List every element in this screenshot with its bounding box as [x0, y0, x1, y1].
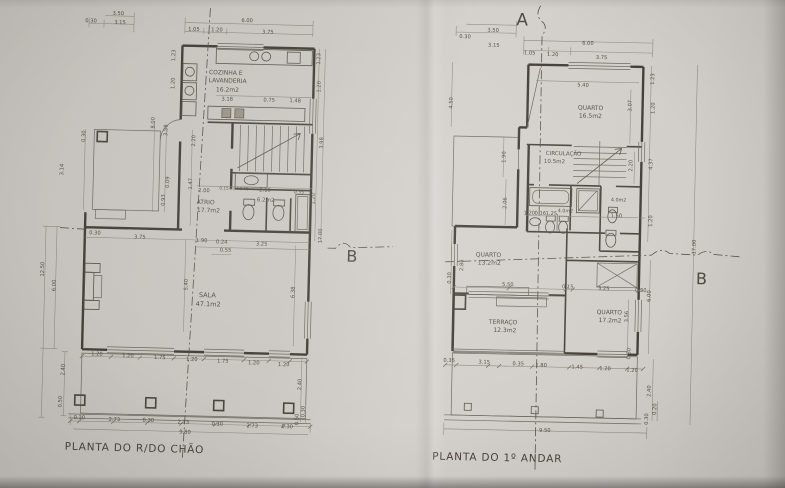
dimension-label: 1.20	[311, 193, 317, 205]
ground-floor-title: PLANTA DO R/DO CHÃO	[65, 440, 205, 456]
counter-hob	[235, 109, 244, 118]
dimension-label: 2.20	[628, 160, 634, 172]
dimension-label: 0.30	[85, 18, 97, 24]
room-area: 16.2m2	[216, 86, 239, 94]
dimension-label: 0.50	[58, 396, 64, 408]
dimension-label: 2.06	[502, 197, 508, 209]
dimension-label: 2.40	[647, 385, 653, 397]
left-floor-plan: B 3.500.303.156.001.051.203.75COZINHA EL…	[35, 4, 398, 462]
dimension-label: 1.20	[547, 52, 559, 58]
wardrobe	[597, 263, 637, 288]
photographed-blueprint: B 3.500.303.156.001.051.203.75COZINHA EL…	[0, 0, 785, 488]
toilet	[273, 205, 284, 220]
fireplace	[84, 263, 102, 309]
roof-hatch	[452, 136, 519, 227]
dimension-label: 3.15	[114, 20, 126, 26]
porch-tiles	[92, 129, 160, 220]
room-area: 17.7m2	[197, 207, 220, 215]
room-area: 4.0m2	[558, 208, 573, 214]
dimension-label: 1.05	[188, 27, 200, 33]
room-area: 12.3m2	[493, 327, 516, 334]
dimension-label: 1.80	[535, 363, 547, 369]
room-area: 10.5m2	[544, 159, 565, 165]
dimension-label: 1.20	[626, 368, 638, 374]
dimension-label: 1.90	[196, 238, 208, 244]
dimension-label: 3.15	[488, 43, 500, 49]
column	[214, 400, 224, 410]
dimension-label: 1.20	[648, 215, 654, 227]
dimension-label: 1.20	[248, 360, 260, 366]
room-label: QUARTO	[476, 251, 502, 259]
stove	[287, 52, 300, 63]
dimension-label: 0.15	[562, 284, 574, 290]
dimension-label: 0.93	[161, 194, 167, 206]
column	[146, 398, 156, 408]
dimension-label: 0.84	[229, 186, 239, 191]
appliance	[183, 64, 197, 81]
column	[453, 295, 465, 309]
dimension-label: 3.56	[624, 311, 630, 323]
staircase	[573, 140, 627, 186]
dimension-label: 0.30	[635, 288, 647, 294]
column	[284, 403, 294, 413]
dimension-label: 0.30	[74, 415, 86, 421]
room-area: 6.2m2	[257, 197, 275, 203]
dimension-label: 2.73	[177, 420, 189, 426]
dimension-label: 2.20	[191, 135, 197, 147]
dimension-label: 1.20	[316, 81, 322, 93]
right-floor-plan: A B 3.500.303.156.001.051.203.755.40QUAR…	[432, 4, 747, 474]
dimension-label: 4.37	[648, 158, 654, 170]
section-marker-b: B	[346, 247, 357, 266]
room-label: ATRIO	[197, 199, 215, 206]
dimension-label: 0.30	[626, 348, 632, 360]
first-floor-title: PLANTA DO 1º ANDAR	[432, 451, 562, 466]
dimension-label: 0.09	[165, 176, 171, 188]
dimension-label: 2.40	[297, 379, 303, 391]
dimension-label: 1.05	[524, 50, 536, 56]
dimension-label: 0.20	[652, 403, 658, 415]
room-label: COZINHA E	[209, 69, 243, 77]
bathroom-fixtures	[529, 188, 618, 248]
kitchen-fixtures	[182, 48, 313, 122]
dimension-label: 1.20	[186, 357, 198, 363]
post-base	[596, 410, 603, 417]
dimension-label: 9.50	[539, 428, 551, 434]
staircase	[237, 125, 304, 173]
dimension-label: 0.30	[281, 424, 293, 430]
dimension-label: 1.20	[599, 366, 611, 372]
section-marker-b: B	[696, 269, 707, 288]
dimension-label: 2.40	[60, 364, 66, 376]
dimension-label: 3.07	[628, 100, 634, 112]
dimension-label: 2.16	[259, 187, 271, 193]
counter-hob	[222, 109, 231, 118]
dimension-label: 0.35	[294, 189, 304, 195]
dimension-label: 1.25	[545, 211, 557, 217]
dimension-label: 3.14	[59, 163, 65, 175]
dimension-label: 2.73	[108, 417, 120, 423]
dimension-label: 1.20	[122, 353, 134, 359]
dimension-label: 1.75	[154, 355, 166, 361]
dimension-label: 0.35	[512, 361, 524, 367]
dimension-label: 17.00	[692, 240, 698, 255]
dimension-label: 5.50	[502, 282, 514, 288]
dimension-label: 0.35	[443, 358, 455, 364]
dimension-label: 0.55	[220, 247, 232, 253]
dimension-label: 8.00	[150, 117, 156, 129]
dimension-label: 1.47	[188, 178, 194, 190]
dimension-label: 6.38	[290, 286, 296, 298]
dimension-label: 1.20	[650, 102, 656, 114]
dimension-label: 3.75	[596, 55, 608, 61]
dimension-label: 0.30	[89, 230, 101, 236]
room-label: CIRCULAÇÃO	[546, 150, 582, 158]
dimension-label: 2.00	[198, 188, 210, 194]
dimension-label: 1.45	[571, 364, 583, 370]
dimension-label: 1.23	[316, 53, 322, 65]
dimension-label: 4.50	[449, 97, 455, 109]
dimension-label: 12.50	[40, 262, 46, 277]
dimension-label: 6.00	[241, 18, 253, 24]
dimension-label: 5.40	[184, 279, 190, 291]
dimension-label: 3.50	[487, 28, 499, 34]
dimension-label: 1.20	[278, 362, 290, 368]
column	[97, 131, 107, 141]
dimension-label: 0.16	[534, 211, 546, 217]
dimension-label: 2.88	[459, 259, 465, 271]
room-area: 16.5m2	[579, 113, 602, 120]
sink-bowl	[262, 52, 271, 61]
dimension-label: 3.75	[262, 29, 274, 35]
section-marker-a: A	[516, 10, 528, 30]
dimension-label: 9.80	[179, 430, 191, 436]
dimension-label: 0.30	[447, 272, 453, 284]
section-line-a: A	[507, 5, 546, 470]
post-base	[531, 407, 538, 414]
room-label: QUARTO	[597, 309, 623, 317]
terrace-tiles	[68, 353, 312, 424]
dimension-label: 0.30	[644, 413, 650, 425]
dimension-label: 3.18	[221, 96, 233, 102]
dimension-label: 17.00	[318, 228, 324, 243]
dimension-label: 0.75	[263, 98, 275, 104]
dimension-label: 0.30	[142, 418, 154, 424]
dimension-label: 1.20	[523, 210, 535, 216]
room-area: 4.0m2	[611, 197, 626, 203]
column	[75, 395, 85, 405]
room-area: 47.1m2	[196, 300, 221, 309]
dimension-label: 1.90	[501, 151, 507, 163]
dimension-label: 1.23	[650, 73, 656, 85]
room-label: TERRAÇO	[488, 319, 518, 327]
toilet	[243, 205, 254, 220]
dimension-label: 3.25	[256, 241, 268, 247]
appliance	[182, 102, 196, 116]
dimension-label: 5.40	[577, 83, 589, 89]
dimension-label: 2.73	[246, 423, 258, 429]
dimension-label: 0.50	[294, 414, 300, 426]
dimension-label: 1.20	[91, 351, 103, 357]
dimension-label: 3.50	[112, 11, 124, 17]
room-label: LAVANDERIA	[209, 77, 248, 85]
dimension-label: 0.30	[300, 406, 306, 418]
dimension-label: 3.58	[163, 124, 169, 136]
sink-bowl	[250, 52, 259, 61]
dimension-label: 6.00	[51, 280, 57, 292]
dimension-label: 0.30	[459, 34, 471, 40]
dimension-label: 1.20	[211, 27, 223, 33]
entry-step	[95, 209, 125, 219]
dimension-label: 1.23	[171, 49, 177, 61]
room-area: 13.2m2	[478, 259, 501, 266]
dimension-label: 6.00	[582, 41, 594, 47]
plans-drawing: B 3.500.303.156.001.051.203.75COZINHA EL…	[0, 0, 785, 488]
dimension-label: 3.15	[478, 360, 490, 366]
dimension-label: 1.48	[289, 98, 301, 104]
appliance	[182, 83, 196, 100]
room-label: QUARTO	[578, 105, 604, 113]
dimension-label: 0.30	[211, 421, 223, 427]
dimension-label: 1.50	[610, 213, 622, 219]
dimension-label: 1.75	[217, 358, 229, 364]
dimension-label: 0.15	[239, 186, 249, 191]
dimension-label: 6.00	[647, 290, 653, 302]
dimension-label: 3.75	[134, 234, 146, 240]
dimension-label: 0.30	[81, 130, 87, 142]
post-base	[464, 403, 471, 410]
room-label: SALA	[199, 291, 217, 299]
dimension-label: 1.20	[170, 77, 176, 89]
dimension-label: 3.25	[598, 286, 610, 292]
sink	[244, 176, 258, 185]
room-area: 17.2m2	[599, 317, 622, 324]
dimension-label: 3.98	[319, 137, 325, 149]
dimension-label: 0.15	[219, 185, 229, 190]
dimension-label: 0.24	[216, 239, 228, 245]
